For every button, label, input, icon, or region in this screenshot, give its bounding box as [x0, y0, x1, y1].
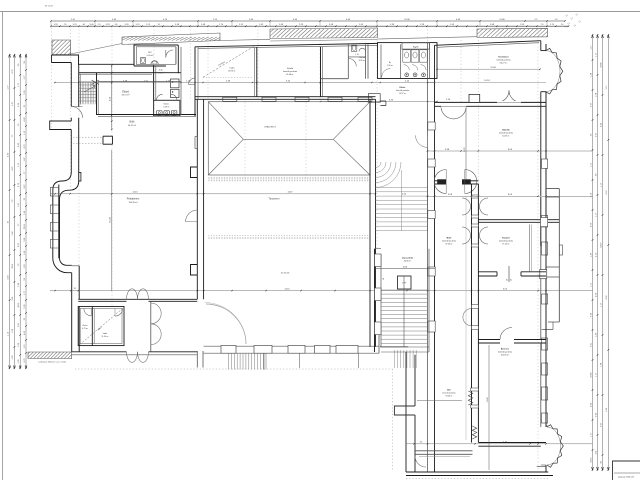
svg-text:Öltöző: Öltöző	[359, 56, 366, 59]
svg-text:Próbaterem: Próbaterem	[127, 198, 140, 201]
svg-text:30.61: 30.61	[24, 223, 26, 229]
svg-text:GYAKORLÓ: GYAKORLÓ	[264, 126, 276, 129]
svg-text:14.67: 14.67	[287, 192, 293, 194]
svg-text:LIFT: LIFT	[402, 283, 407, 285]
svg-text:4.73 m²: 4.73 m²	[82, 327, 88, 330]
svg-text:laminált parketta: laminált parketta	[499, 132, 514, 135]
svg-text:5.03 m²: 5.03 m²	[147, 54, 154, 57]
svg-text:8.35 m²: 8.35 m²	[359, 59, 366, 62]
svg-text:laminált parketta: laminált parketta	[497, 59, 512, 62]
svg-text:13.08: 13.08	[499, 19, 505, 21]
svg-text:.76: .76	[73, 288, 76, 290]
svg-text:3.19 m²: 3.19 m²	[163, 105, 170, 108]
svg-text:laminált parketta: laminált parketta	[498, 351, 513, 354]
svg-text:105.00 m²: 105.00 m²	[501, 354, 510, 357]
svg-text:41.08 m²: 41.08 m²	[286, 73, 294, 76]
svg-text:93.06 m²: 93.06 m²	[445, 395, 452, 398]
svg-text:Büfé: Büfé	[130, 121, 136, 124]
svg-text:54.37 m²: 54.37 m²	[502, 135, 510, 138]
svg-text:71.20 m²: 71.20 m²	[502, 243, 510, 246]
svg-text:.76: .76	[419, 442, 422, 444]
svg-text:30.61: 30.61	[18, 302, 20, 308]
svg-text:10.18: 10.18	[484, 80, 490, 82]
svg-text:14.16: 14.16	[284, 288, 290, 290]
svg-text:Étterem: Étterem	[501, 348, 509, 351]
svg-text:54.07 m²: 54.07 m²	[128, 124, 136, 127]
svg-text:62.07: 62.07	[600, 242, 602, 248]
svg-text:13.48: 13.48	[487, 397, 489, 403]
svg-text:laminált parketta: laminált parketta	[499, 240, 514, 243]
svg-text:14.57 m²: 14.57 m²	[399, 92, 406, 95]
svg-text:Lépcsőház: Lépcsőház	[402, 258, 414, 260]
svg-text:Táncterem: Táncterem	[269, 198, 280, 201]
svg-text:Klubtér: Klubtér	[502, 237, 510, 240]
svg-text:11.49 m²: 11.49 m²	[102, 335, 109, 338]
svg-text:.90: .90	[511, 279, 513, 281]
svg-text:laminált parketta: laminált parketta	[442, 392, 455, 395]
svg-text:15.70 mb: 15.70 mb	[281, 273, 291, 275]
svg-text:Iroda: Iroda	[230, 67, 236, 70]
svg-text:Zuh.: Zuh.	[159, 70, 164, 72]
svg-text:WC: WC	[148, 52, 152, 54]
svg-text:40.36 m²: 40.36 m²	[404, 260, 412, 263]
svg-text:28.73 m²: 28.73 m²	[228, 70, 236, 73]
svg-text:23.86: 23.86	[590, 372, 592, 378]
svg-text:11.84: 11.84	[490, 67, 496, 69]
svg-text:laminált parketta: laminált parketta	[283, 70, 298, 73]
svg-text:30.61: 30.61	[12, 263, 14, 269]
svg-text:14.13: 14.13	[132, 192, 138, 194]
svg-text:1.70: 1.70	[355, 54, 359, 56]
svg-text:Stúdió: Stúdió	[287, 67, 294, 70]
svg-text:Kisétkező: Kisétkező	[498, 56, 509, 59]
svg-text:Büfé: Büfé	[447, 238, 453, 240]
svg-text:15.43: 15.43	[110, 216, 112, 222]
svg-text:37.00 m²: 37.00 m²	[445, 243, 453, 246]
svg-text:Egyéb: Egyéb	[413, 46, 420, 48]
svg-text:alaprajz földszint: alaprajz földszint	[618, 475, 635, 478]
svg-text:1.90 m²: 1.90 m²	[387, 64, 393, 67]
svg-text:.30: .30	[507, 279, 509, 281]
svg-text:Előtér: Előtér	[400, 86, 406, 89]
svg-text:M 1:100: M 1:100	[45, 6, 54, 8]
svg-text:Öltöző: Öltöző	[122, 91, 130, 94]
svg-text:10.98: 10.98	[404, 19, 410, 21]
svg-text:33.57 m²: 33.57 m²	[122, 94, 130, 97]
svg-text:Bár: Bár	[447, 389, 451, 392]
svg-text:csatlakozó földszint csat. szi: csatlakozó földszint csat. szintje	[38, 361, 67, 364]
svg-text:23.86: 23.86	[600, 62, 602, 68]
svg-text:62.07: 62.07	[590, 457, 592, 463]
svg-text:laminált parketta: laminált parketta	[396, 89, 409, 92]
svg-text:Kézm.: Kézm.	[164, 104, 170, 106]
svg-text:196.28 m²: 196.28 m²	[128, 201, 137, 204]
svg-text:Ebédlő: Ebédlő	[502, 130, 510, 132]
svg-text:66.27 m²: 66.27 m²	[500, 62, 508, 65]
svg-text:laminált parketta: laminált parketta	[442, 240, 457, 243]
